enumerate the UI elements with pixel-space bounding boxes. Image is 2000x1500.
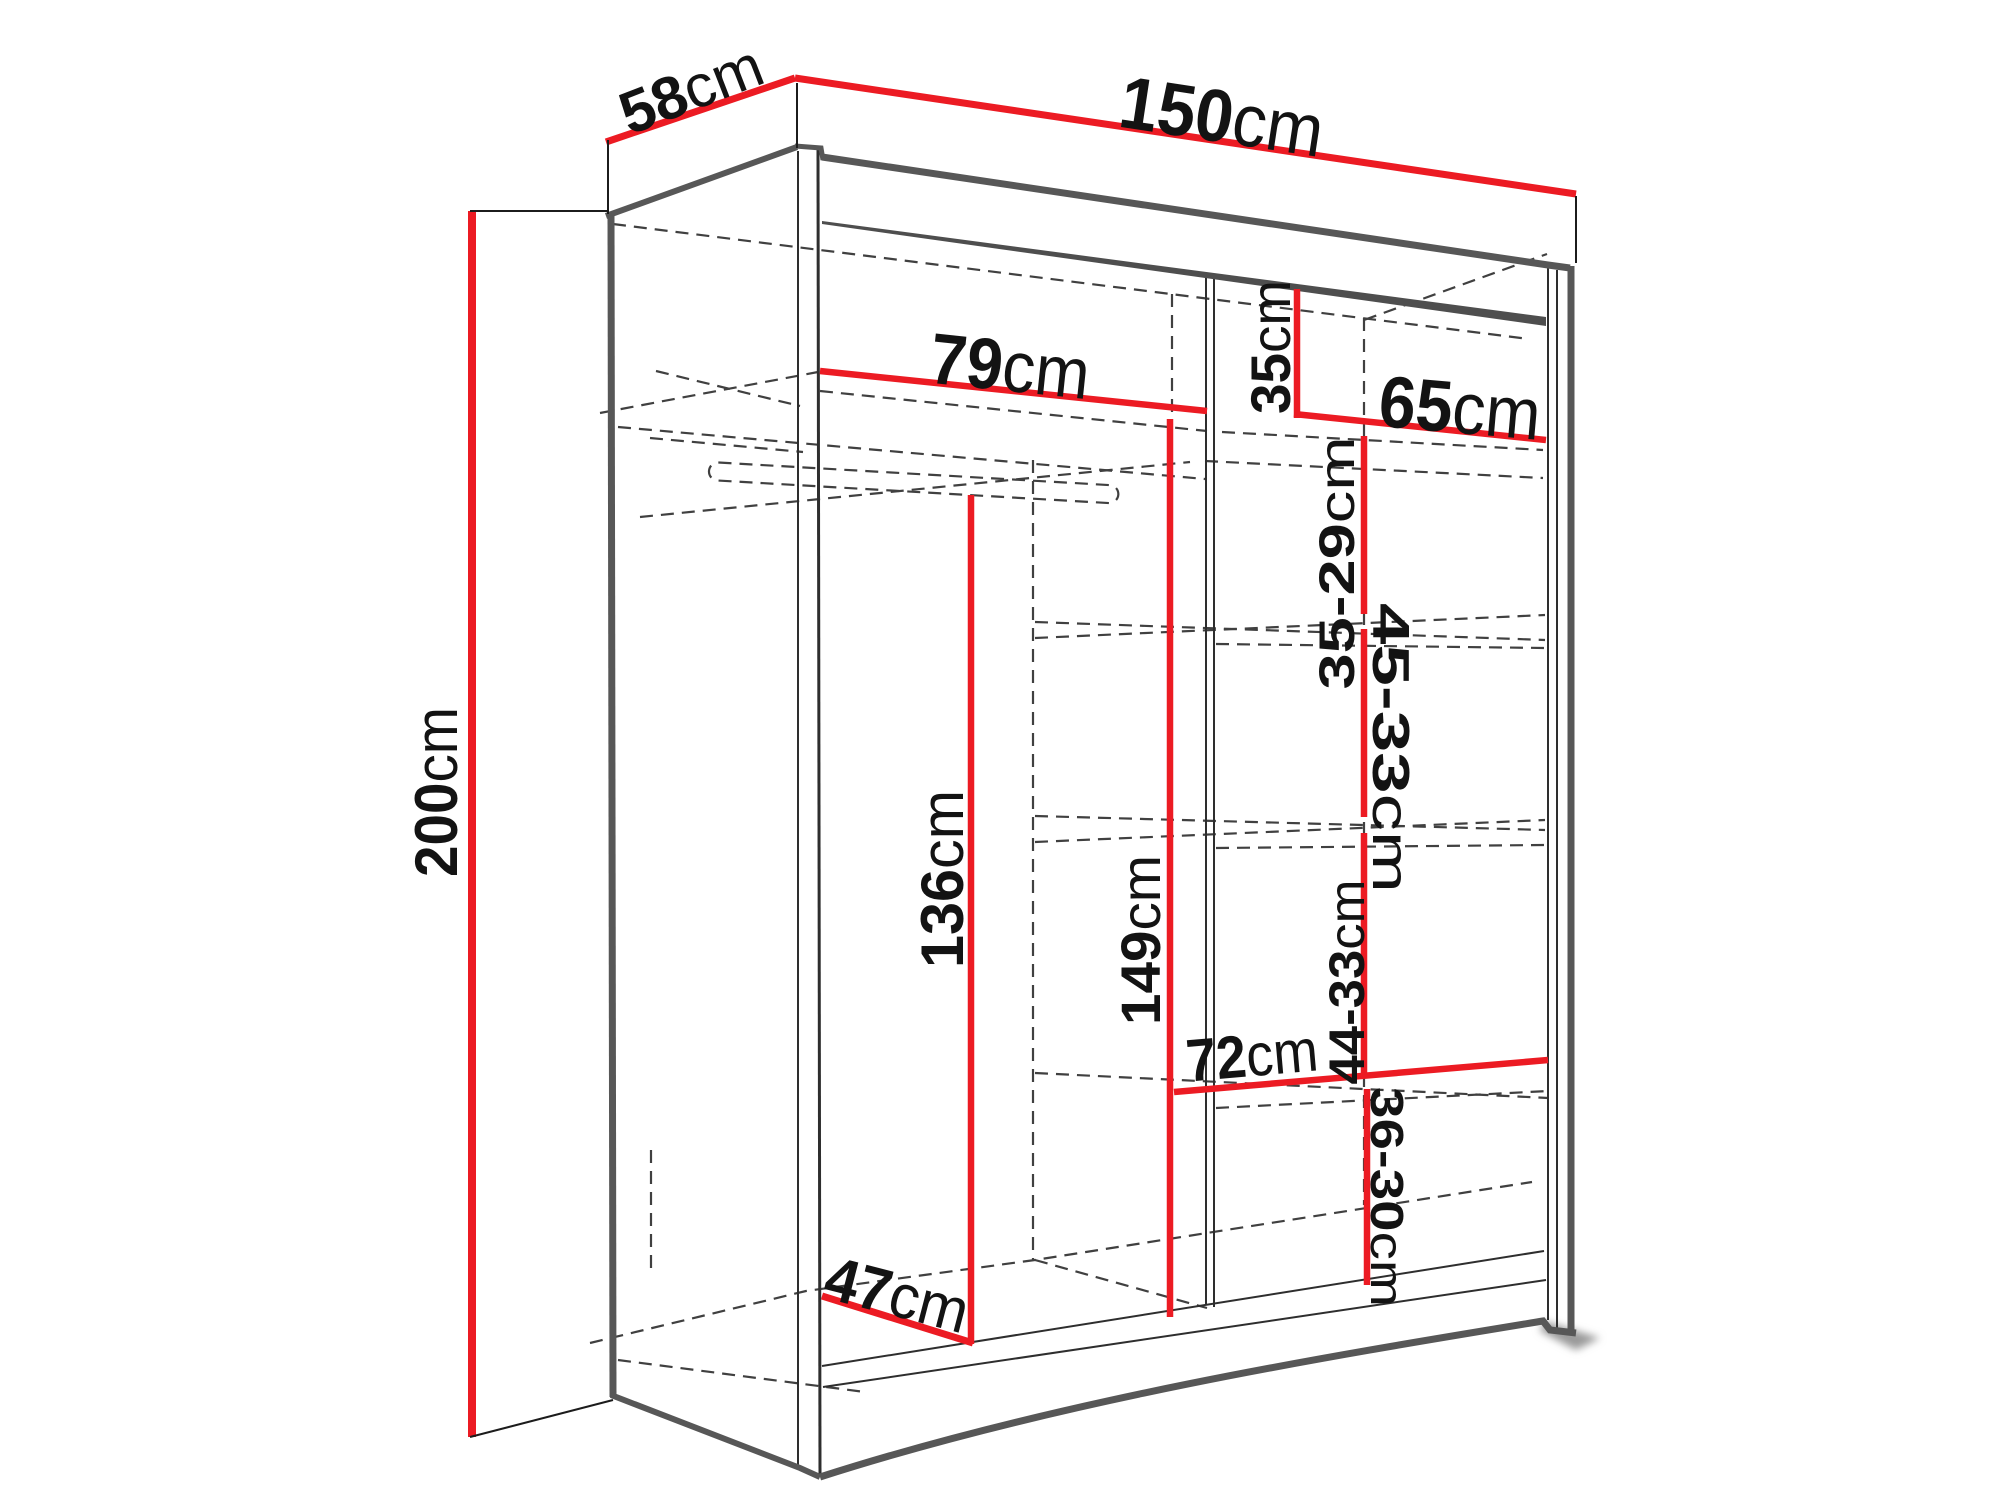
svg-text:44-33cm: 44-33cm [1319,880,1375,1085]
svg-text:65cm: 65cm [1376,361,1544,456]
svg-text:35cm: 35cm [1239,280,1302,414]
svg-text:149cm: 149cm [1109,855,1172,1025]
svg-text:35-29cm: 35-29cm [1309,437,1365,690]
svg-text:47cm: 47cm [818,1243,977,1346]
svg-text:79cm: 79cm [926,319,1093,415]
svg-text:45-33cm: 45-33cm [1361,603,1419,893]
svg-text:36-30cm: 36-30cm [1361,1087,1413,1307]
svg-text:136cm: 136cm [909,790,976,968]
svg-text:72cm: 72cm [1183,1016,1320,1094]
svg-text:200cm: 200cm [403,707,470,877]
svg-text:58cm: 58cm [610,31,772,147]
svg-text:150cm: 150cm [1114,60,1329,173]
